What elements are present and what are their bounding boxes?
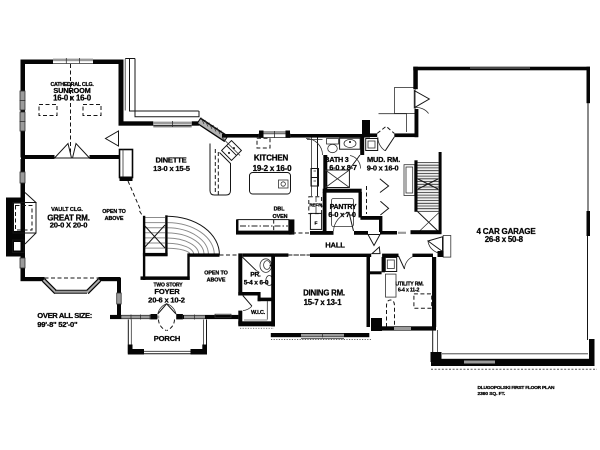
svg-text:PORCH: PORCH — [154, 334, 180, 343]
svg-text:DBL: DBL — [274, 206, 286, 212]
svg-text:PR.: PR. — [250, 272, 261, 279]
svg-text:W.I.C.: W.I.C. — [251, 310, 266, 316]
svg-text:OPEN TO: OPEN TO — [102, 209, 125, 215]
svg-text:9-0 x 16-0: 9-0 x 16-0 — [367, 164, 399, 173]
svg-text:HALL: HALL — [325, 241, 345, 250]
svg-text:99'-8" 52'-0": 99'-8" 52'-0" — [37, 320, 78, 329]
svg-text:OPEN TO: OPEN TO — [204, 271, 227, 277]
svg-text:OVEN: OVEN — [273, 214, 288, 220]
svg-text:2390 SQ. FT.: 2390 SQ. FT. — [478, 391, 506, 397]
svg-text:5-4 x 6-0: 5-4 x 6-0 — [244, 280, 269, 287]
svg-text:REFR.: REFR. — [309, 202, 322, 207]
svg-text:19-2 x 16-0: 19-2 x 16-0 — [253, 164, 292, 173]
svg-text:16-0 x 16-0: 16-0 x 16-0 — [53, 94, 92, 103]
svg-text:20-6 x 10-2: 20-6 x 10-2 — [148, 295, 185, 304]
svg-text:ABOVE: ABOVE — [105, 216, 124, 222]
svg-text:OVER ALL SIZE:: OVER ALL SIZE: — [37, 311, 92, 320]
svg-text:6-0 x 8-7: 6-0 x 8-7 — [329, 163, 357, 172]
svg-text:DINING RM.: DINING RM. — [303, 289, 345, 298]
svg-text:F: F — [315, 221, 318, 227]
svg-text:13-0 x 15-5: 13-0 x 15-5 — [153, 164, 191, 173]
svg-text:20-0 X 20-0: 20-0 X 20-0 — [50, 221, 87, 230]
svg-text:ABOVE: ABOVE — [207, 278, 226, 284]
svg-text:15-7 x 13-1: 15-7 x 13-1 — [304, 298, 343, 307]
svg-text:6-0 x 7-0: 6-0 x 7-0 — [328, 210, 356, 219]
svg-text:VAULT CLG.: VAULT CLG. — [51, 207, 83, 213]
svg-text:KITCHEN: KITCHEN — [254, 154, 289, 163]
svg-text:DLUGOPOLSKI FIRST FLOOR PLAN: DLUGOPOLSKI FIRST FLOOR PLAN — [478, 385, 555, 391]
svg-text:6-4 x 11-2: 6-4 x 11-2 — [398, 287, 420, 293]
svg-text:26-8 x 50-8: 26-8 x 50-8 — [485, 235, 524, 244]
